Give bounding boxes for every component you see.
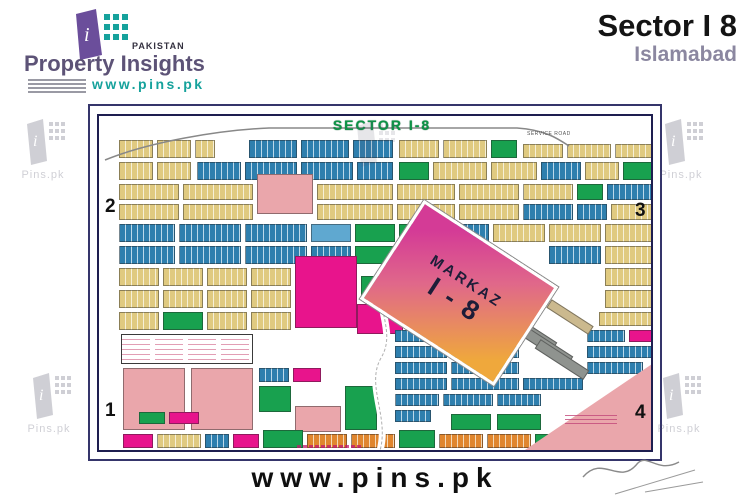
plot-block [523,378,583,390]
plot-block [546,299,593,335]
plot-block [357,162,393,180]
plot-block [567,144,611,158]
map-corner-number-2: 2 [105,196,116,218]
plot-block [157,140,191,158]
plot-block [399,162,429,180]
plot-block [629,330,653,342]
plot-block [257,174,313,214]
plot-block [163,290,203,308]
plot-block [443,394,493,406]
plot-block [179,224,241,242]
plot-block [301,140,349,158]
plot-block [497,414,541,430]
plot-block [119,246,175,264]
plot-block [549,246,601,264]
plot-block [251,312,291,330]
map-corner-number-1: 1 [105,400,116,422]
plot-block [587,346,653,358]
plot-block [251,268,291,286]
map-corner-number-3: 3 [635,200,646,222]
plot-block [355,224,395,242]
plot-block [395,410,431,422]
plot-block [195,140,215,158]
page-title: Sector I 8 Islamabad [597,10,737,67]
plot-block [395,378,447,390]
plot-block [587,362,643,374]
watermark-building-icon: i [27,370,71,420]
plot-block [157,162,191,180]
plot-block [119,140,153,158]
plot-block [605,224,653,242]
watermark-label: Pins.pk [8,169,78,181]
plot-block [259,368,289,382]
plot-block [577,184,603,200]
plot-block [249,140,297,158]
plot-block [487,434,531,448]
plot-block [163,268,203,286]
plot-block [459,184,519,200]
plot-block [535,339,590,380]
plot-block [245,224,307,242]
plot-block [119,184,179,200]
plot-block [183,204,253,220]
plot-block [207,290,247,308]
plot-block [119,224,175,242]
plot-block [399,140,439,158]
map-title: SECTOR I-8 [297,117,467,133]
plot-block [577,204,607,220]
plot-block [157,434,201,448]
plot-block [119,312,159,330]
plot-block [399,430,435,448]
watermark-building-icon: i [657,370,701,420]
plot-block [317,204,393,220]
watermark-building-icon: i [659,116,703,166]
brand-name: Property Insights [24,51,214,77]
plot-block [207,268,247,286]
plot-block [205,434,229,448]
plot-block [623,162,653,180]
city-name: Islamabad [597,43,737,67]
plot-block [119,204,179,220]
plot-block [451,414,491,430]
plot-block [491,140,517,158]
watermark-building-icon: i [21,116,65,166]
brand-tagline: PAKISTAN [132,41,185,51]
plot-block [615,144,653,158]
svg-text:i: i [39,387,43,404]
plot-block [443,140,487,158]
plot-block [395,362,447,374]
plot-block [119,162,153,180]
building-letter-i: i [84,24,90,46]
plot-block [169,412,199,424]
plot-block [119,268,159,286]
plot-block [587,330,625,342]
plot-block [599,312,653,326]
plot-block [605,290,653,308]
plot-block [585,162,619,180]
brand-logo: i PAKISTAN Property Insights www.pins.pk [10,4,210,100]
plot-block [523,144,563,158]
plot-block [163,312,203,330]
plot-block [433,162,487,180]
plot-block [197,162,241,180]
plot-block [523,204,573,220]
map-corner-number-4: 4 [635,402,646,424]
plot-block [395,394,439,406]
plot-block [179,246,241,264]
plot-block [123,434,153,448]
plot-block [497,394,541,406]
brand-decorative-lines [28,79,86,95]
plot-block [605,246,653,264]
plot-block [233,434,259,448]
plot-block [611,204,653,220]
watermark-left: i Pins.pk [8,116,78,181]
plot-block [541,162,581,180]
plot-block [251,290,291,308]
service-road-label: SERVICE ROAD [527,131,571,137]
plot-block [191,368,253,430]
watermark-bottom-left: i Pins.pk [14,370,84,435]
plot-block [295,406,341,432]
watermark-label: Pins.pk [14,423,84,435]
plot-block [295,256,357,328]
svg-text:i: i [671,133,675,150]
plot-block [605,268,653,286]
plot-block [607,184,653,200]
bottom-road-label [297,445,363,448]
plot-block [259,386,291,412]
plot-block [493,224,545,242]
reserved-area-note [565,412,617,427]
plot-block [549,224,601,242]
sector-name: Sector I 8 [597,10,737,43]
window-grid-icon [104,14,128,40]
plot-block [459,204,519,220]
plot-block [345,386,377,430]
plot-block [311,224,351,242]
sector-map: SECTOR I-8 MARKAZ I - 8 SERVICE ROAD 2 3… [97,114,653,452]
plot-block [491,162,537,180]
svg-text:i: i [33,133,37,150]
plot-block [183,184,253,200]
plot-block [119,290,159,308]
plot-block [317,184,393,200]
plot-block [523,184,573,200]
plot-block [353,140,393,158]
plot-block [139,412,165,424]
plot-block [397,184,455,200]
plot-block [439,434,483,448]
svg-text:i: i [669,387,673,404]
signature-scribble [575,442,715,497]
plot-block [207,312,247,330]
brand-url-link[interactable]: www.pins.pk [92,76,205,92]
plot-number-list [121,334,253,364]
plot-block [293,368,321,382]
